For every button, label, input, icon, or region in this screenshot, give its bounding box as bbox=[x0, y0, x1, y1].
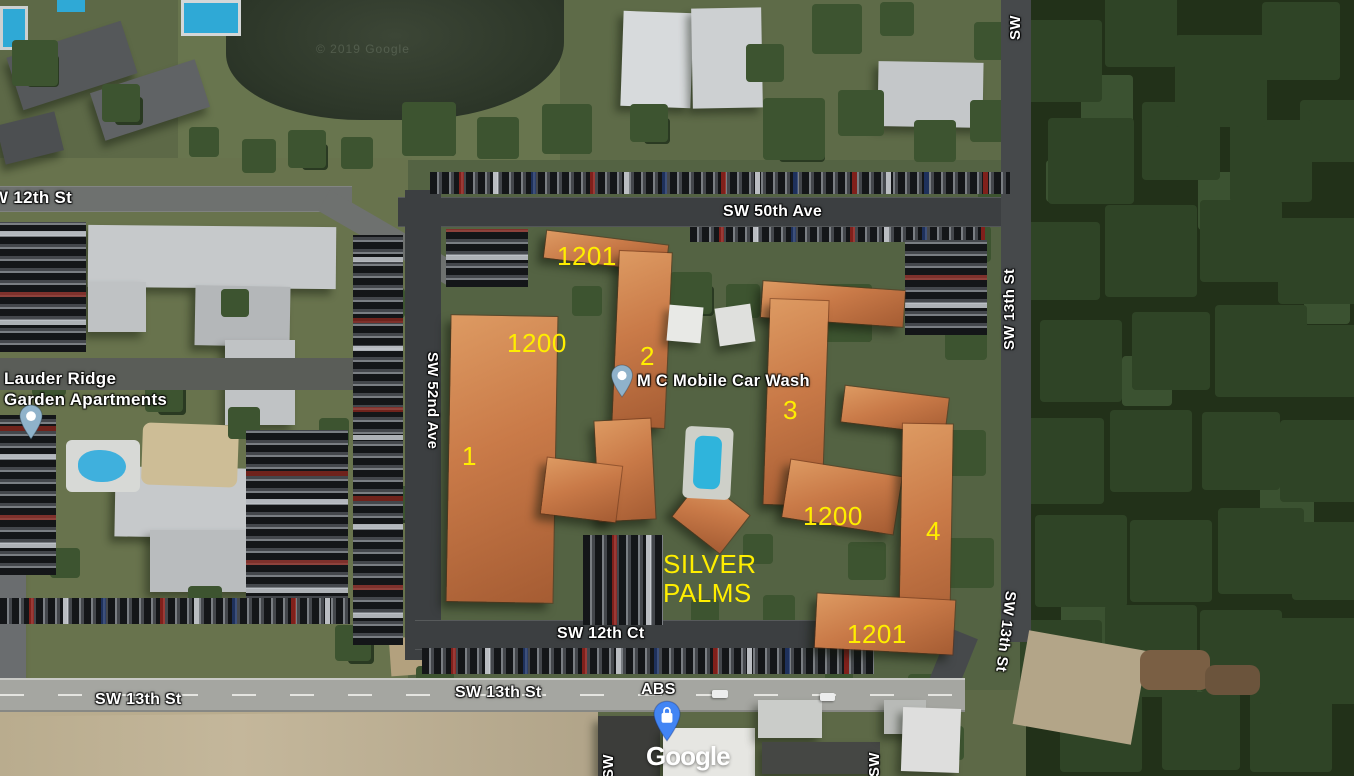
annotation-1201-top: 1201 bbox=[557, 242, 617, 271]
dirt-cleared-land bbox=[0, 708, 598, 776]
pool-top-left-corner bbox=[0, 6, 28, 50]
street-label-sw-13th-st-bottom-left: SW 13th St bbox=[95, 692, 182, 708]
parked-cars-lot bbox=[905, 240, 987, 335]
building-roof bbox=[691, 7, 763, 108]
building-roof bbox=[877, 61, 983, 128]
copyright-watermark: © 2019 Google bbox=[316, 42, 410, 56]
apartment-building-roof bbox=[88, 225, 337, 289]
street-label-sw-12th-ct: SW 12th Ct bbox=[557, 626, 644, 642]
gazebo-roof bbox=[715, 304, 756, 347]
street-label-sw-50th-ave: SW 50th Ave bbox=[723, 204, 822, 220]
debris-pile bbox=[1205, 665, 1260, 695]
pool-top-small bbox=[57, 0, 85, 12]
vehicle bbox=[712, 690, 728, 698]
place-label-abs: ABS bbox=[641, 682, 676, 698]
street-label-w-12th-st: W 12th St bbox=[0, 189, 72, 206]
google-logo[interactable]: Google bbox=[646, 741, 730, 772]
lauder-ridge-pin[interactable] bbox=[18, 404, 44, 445]
annotation-1200-left: 1200 bbox=[507, 329, 567, 358]
map-pin-icon[interactable] bbox=[18, 404, 44, 440]
street-label-sw-bottom-left: SW bbox=[601, 754, 616, 776]
pool-top-center bbox=[181, 0, 241, 36]
parked-cars-lot bbox=[0, 222, 86, 352]
apartment-building-roof bbox=[88, 282, 146, 332]
tree-canopy-layer bbox=[0, 0, 2, 2]
building-roof bbox=[901, 707, 961, 773]
satellite-map[interactable]: © 2019 Google W 12th St SW 50th Ave SW 5… bbox=[0, 0, 1354, 776]
debris-pile bbox=[1140, 650, 1210, 690]
annotation-2: 2 bbox=[640, 342, 655, 371]
building-roof bbox=[758, 700, 822, 738]
annotation-3: 3 bbox=[783, 396, 798, 425]
street-label-sw-52nd-ave: SW 52nd Ave bbox=[425, 352, 440, 449]
street-label-sw-top-right: SW bbox=[1008, 15, 1023, 40]
annotation-1201-bottom: 1201 bbox=[847, 620, 907, 649]
map-pin-icon[interactable] bbox=[610, 364, 634, 398]
building-roof bbox=[620, 11, 693, 108]
annotation-1: 1 bbox=[462, 442, 477, 471]
place-label-car-wash: M C Mobile Car Wash bbox=[637, 373, 810, 390]
annotation-silver-palms: SILVER PALMS bbox=[663, 550, 757, 607]
parked-cars-lot bbox=[583, 535, 663, 625]
lauder-pool bbox=[78, 450, 126, 482]
road-sw-50th-ave bbox=[398, 197, 1018, 227]
annotation-1200-right: 1200 bbox=[803, 502, 863, 531]
condo-building-2-foot bbox=[541, 458, 622, 523]
abs-store-pin[interactable] bbox=[652, 700, 682, 747]
gazebo-roof bbox=[666, 305, 703, 344]
playground-sand bbox=[141, 422, 239, 487]
dirt-right bbox=[1013, 630, 1148, 744]
parked-cars-row bbox=[0, 598, 350, 624]
street-label-sw-bottom-right: SW bbox=[867, 752, 882, 776]
apartment-building-roof bbox=[194, 285, 290, 347]
parked-cars-strip bbox=[353, 235, 403, 645]
building-roof bbox=[762, 742, 880, 774]
annotation-4: 4 bbox=[926, 517, 941, 546]
parked-cars-lot bbox=[246, 430, 348, 620]
silver-palms-pool bbox=[693, 435, 723, 489]
parked-cars-lot bbox=[446, 229, 528, 287]
car-wash-pin[interactable] bbox=[610, 364, 634, 403]
parked-cars-row bbox=[422, 648, 874, 674]
building-roof bbox=[0, 111, 64, 164]
parked-cars-row bbox=[430, 172, 1010, 194]
shopping-bag-pin-icon[interactable] bbox=[652, 700, 682, 742]
street-label-sw-13th-st-bottom-center: SW 13th St bbox=[455, 685, 542, 701]
street-label-sw-13th-st-right-top: SW 13th St bbox=[1002, 269, 1017, 350]
vehicle bbox=[820, 693, 835, 701]
